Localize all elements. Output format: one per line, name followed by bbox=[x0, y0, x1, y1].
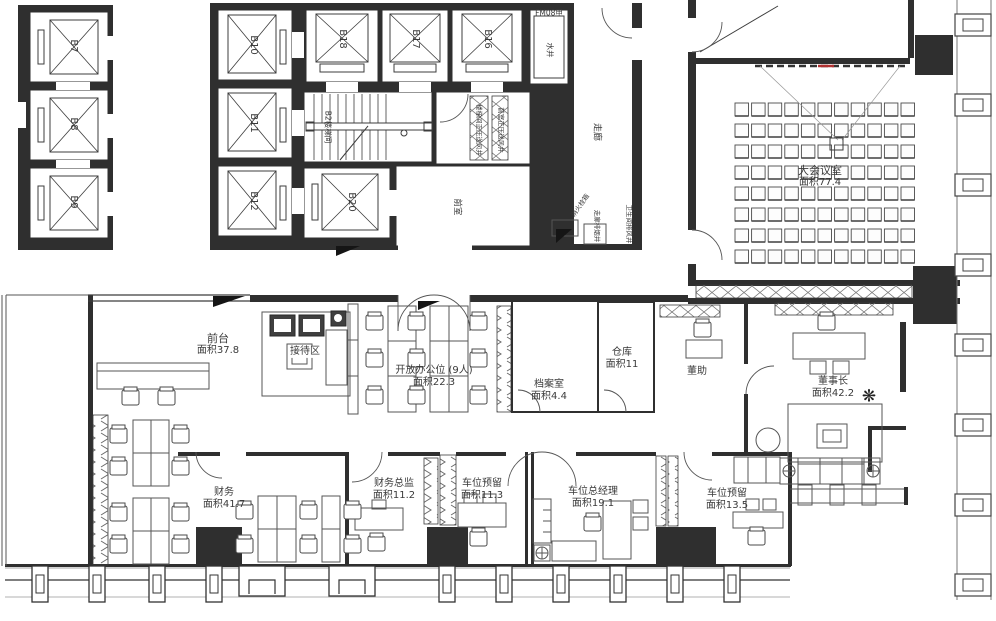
right-facade bbox=[955, 0, 991, 600]
bottom-facade bbox=[5, 566, 790, 602]
chairs bbox=[110, 312, 835, 553]
elevator-cells bbox=[18, 10, 696, 264]
floor-plan: FM08甲 水井 B7 B8 B9 B10 B11 B12 B18 B17 B1… bbox=[0, 0, 996, 621]
plan-linework bbox=[0, 0, 996, 621]
